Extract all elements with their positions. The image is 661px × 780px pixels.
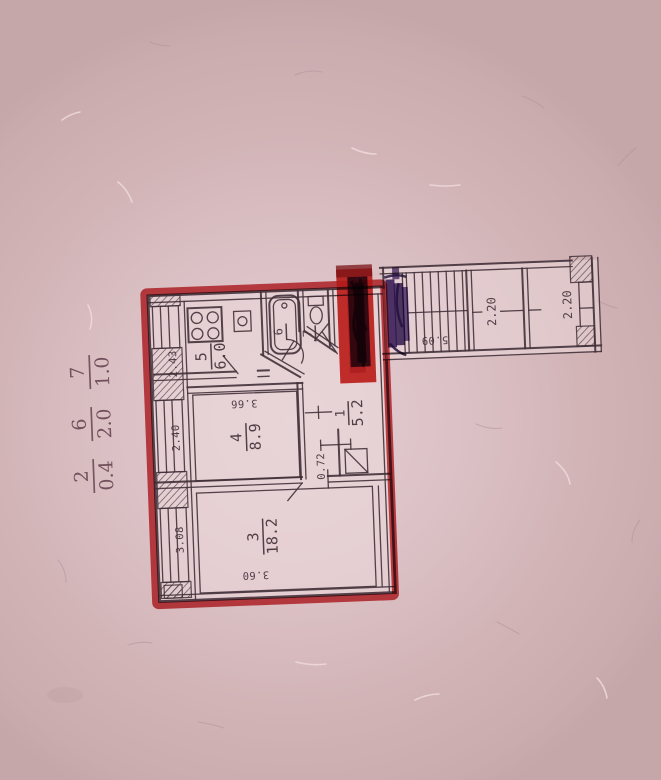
room-number: 3 xyxy=(244,532,262,542)
room-area: 8.9 xyxy=(246,423,265,451)
svg-text:0.72: 0.72 xyxy=(315,453,328,480)
note-denominator: 2.0 xyxy=(93,408,116,439)
scanned-floorplan-page: 5 6.0 4 8.9 3 18.2 1 5.2 6 xyxy=(0,0,661,780)
room-number: 4 xyxy=(227,433,245,443)
margin-fraction-3: 7 1.0 xyxy=(66,354,114,390)
dim-room4-depth: 2.40 xyxy=(170,424,183,451)
room-number: 5 xyxy=(192,352,210,362)
dim-room3-depth: 3.08 xyxy=(174,526,187,553)
room-number: 7 xyxy=(300,330,314,338)
svg-text:2.20: 2.20 xyxy=(560,290,575,319)
svg-text:3.60: 3.60 xyxy=(242,568,269,581)
margin-fraction-1: 2 0.4 xyxy=(70,458,118,494)
margin-fraction-2: 6 2.0 xyxy=(68,406,116,442)
wall-pier xyxy=(576,326,595,347)
dim-room3-width: 3.60 xyxy=(242,568,269,581)
stairwell: 5.09 2.20 2.20 xyxy=(380,256,602,360)
wall-pier xyxy=(150,295,180,307)
floor-plan-svg: 5 6.0 4 8.9 3 18.2 1 5.2 6 xyxy=(0,0,661,780)
note-denominator: 0.4 xyxy=(95,460,118,491)
note-numerator: 6 xyxy=(69,418,91,431)
room-area: 5.2 xyxy=(348,399,367,427)
note-numerator: 7 xyxy=(67,366,89,379)
wall-pier xyxy=(570,256,593,283)
svg-text:2.40: 2.40 xyxy=(170,424,183,451)
room-number: 6 xyxy=(271,328,285,336)
svg-text:2.20: 2.20 xyxy=(484,297,499,326)
svg-text:2.43: 2.43 xyxy=(167,350,180,377)
note-denominator: 1.0 xyxy=(91,356,114,387)
dim-room4-width: 3.66 xyxy=(230,397,257,410)
dim-corridor-length: 5.09 xyxy=(421,333,448,346)
room-area: 18.2 xyxy=(263,518,282,555)
svg-text:5.09: 5.09 xyxy=(421,333,448,346)
note-numerator: 2 xyxy=(71,470,93,483)
dim-stair-bay1: 2.20 xyxy=(484,297,499,326)
room-area: 6.0 xyxy=(211,342,230,370)
purple-scribble-left xyxy=(347,276,370,367)
wall-pier xyxy=(157,471,188,508)
svg-text:3.66: 3.66 xyxy=(230,397,257,410)
floor-plan: 5 6.0 4 8.9 3 18.2 1 5.2 6 xyxy=(63,256,610,609)
margin-notes: 2 0.4 6 2.0 7 1.0 xyxy=(66,354,118,494)
dim-kitchen-width: 2.43 xyxy=(167,350,180,377)
wall-pier xyxy=(164,585,182,599)
dim-hall-passage: 0.72 xyxy=(315,453,328,480)
dim-stair-bay2: 2.20 xyxy=(560,290,575,319)
room-number: 1 xyxy=(333,409,348,417)
svg-text:3.08: 3.08 xyxy=(174,526,187,553)
